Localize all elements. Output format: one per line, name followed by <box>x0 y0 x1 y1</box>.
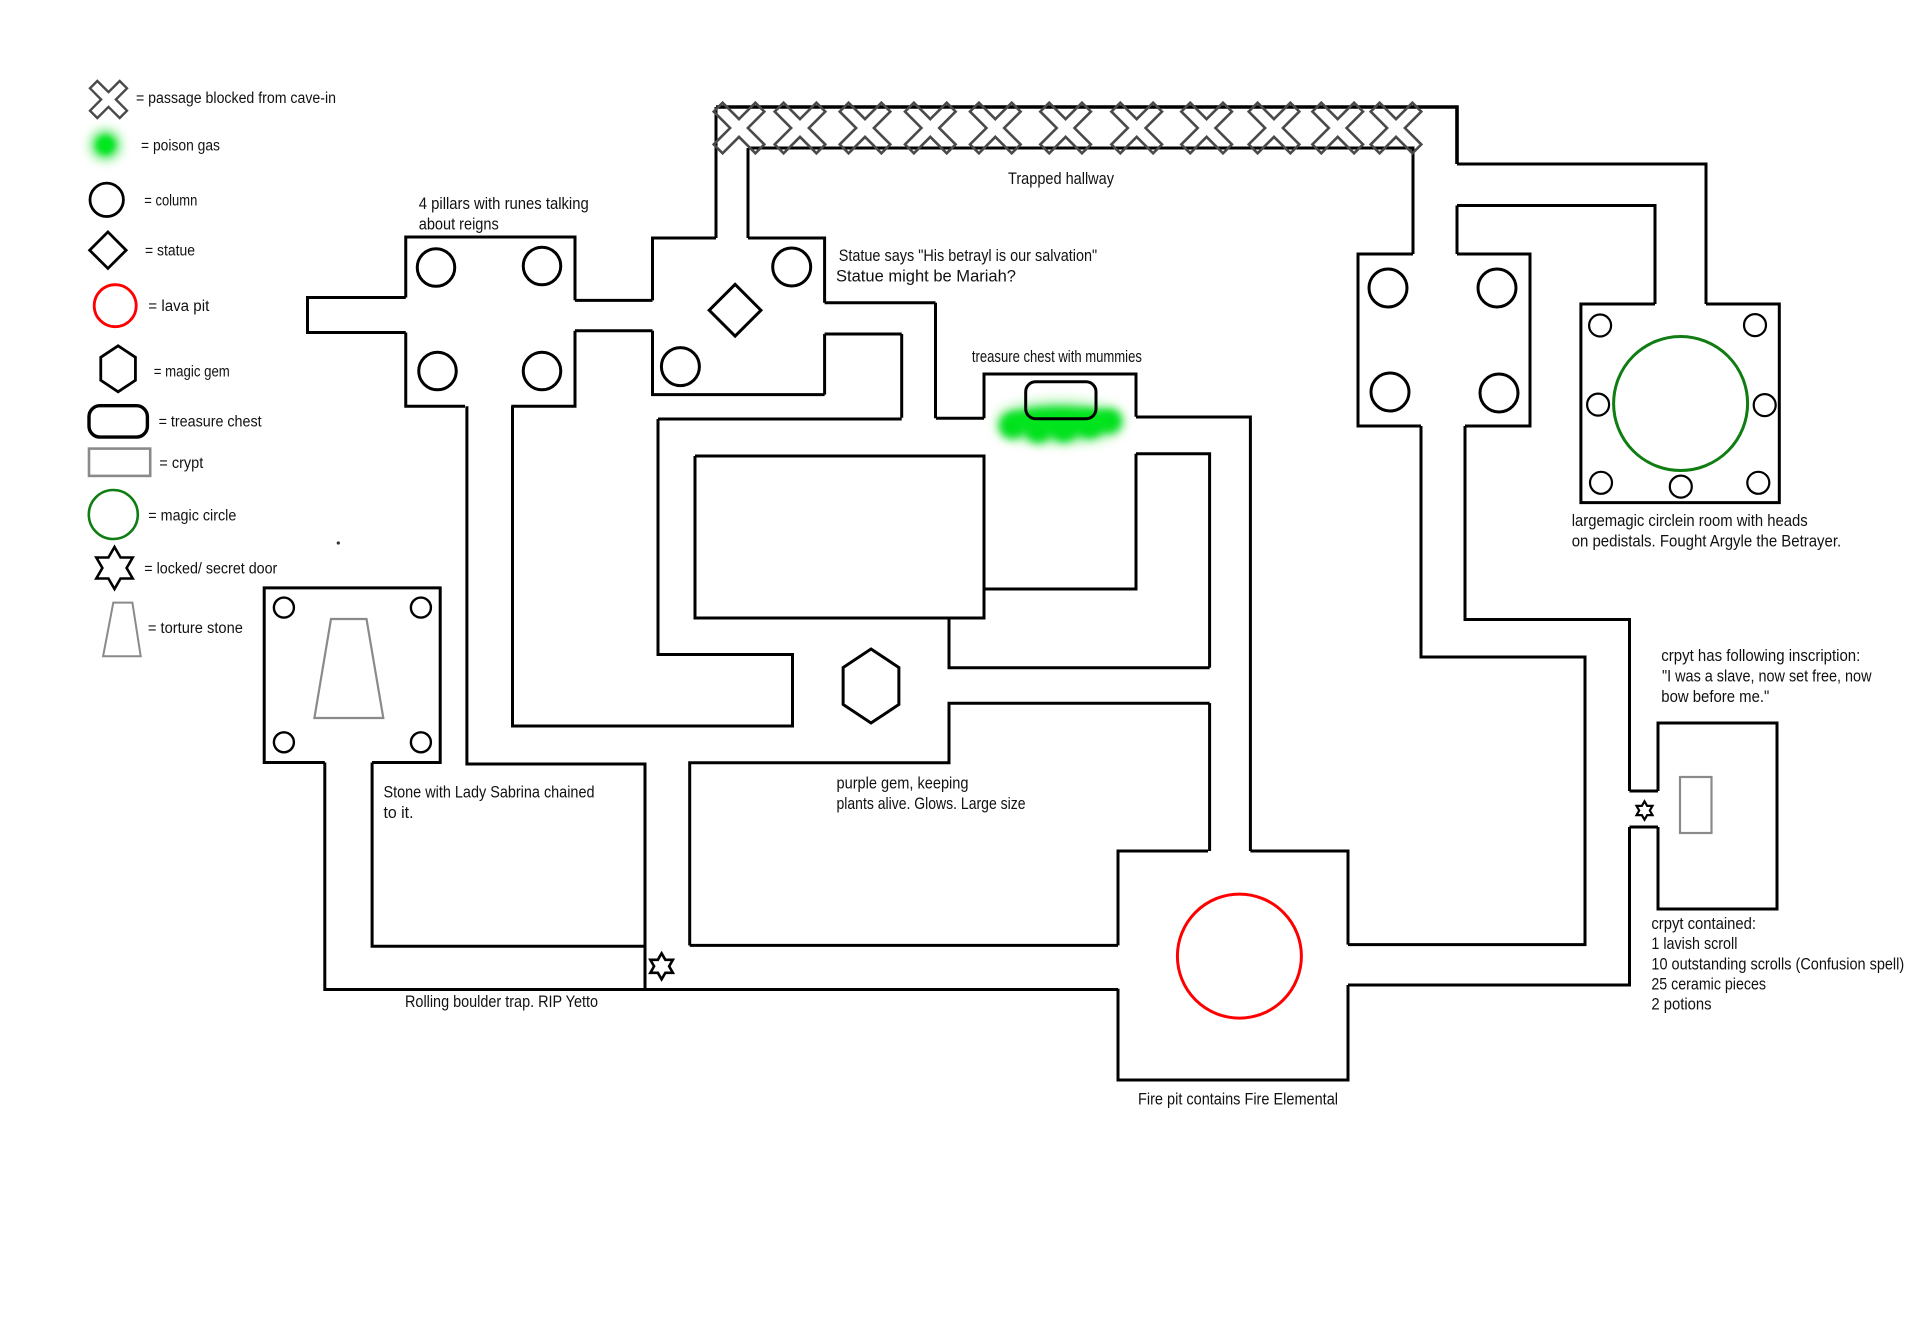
svg-text:= crypt: = crypt <box>159 455 204 472</box>
svg-text:= passage blocked from cave-in: = passage blocked from cave-in <box>136 90 336 107</box>
svg-text:purple gem, keeping: purple gem, keeping <box>837 774 969 792</box>
svg-text:about reigns: about reigns <box>419 216 499 234</box>
svg-text:Statue says "His betrayl is ou: Statue says "His betrayl is our salvatio… <box>839 247 1098 265</box>
svg-text:crpyt has following inscriptio: crpyt has following inscription: <box>1661 647 1860 665</box>
svg-text:largemagic circlein room with: largemagic circlein room with heads <box>1572 512 1808 530</box>
svg-text:= poison gas: = poison gas <box>141 138 220 155</box>
svg-text:Fire pit contains Fire Element: Fire pit contains Fire Elemental <box>1138 1091 1338 1109</box>
svg-text:25 ceramic pieces: 25 ceramic pieces <box>1651 976 1766 994</box>
svg-text:= locked/ secret door: = locked/ secret door <box>144 561 277 578</box>
svg-text:= column: = column <box>144 192 197 209</box>
svg-text:4 pillars with runes talking: 4 pillars with runes talking <box>419 195 589 213</box>
svg-text:= statue: = statue <box>145 243 195 260</box>
svg-text:= treasure chest: = treasure chest <box>159 414 263 431</box>
svg-text:Rolling boulder trap. RIP Yett: Rolling boulder trap. RIP Yetto <box>405 993 598 1011</box>
svg-text:= magic circle: = magic circle <box>148 508 236 525</box>
svg-text:to it.: to it. <box>384 804 414 822</box>
svg-text:= lava pit: = lava pit <box>148 298 210 315</box>
svg-text:= magic gem: = magic gem <box>154 364 230 381</box>
svg-text:1 lavish scroll: 1 lavish scroll <box>1651 935 1737 953</box>
svg-text:treasure chest with mummies: treasure chest with mummies <box>972 348 1142 366</box>
svg-text:bow before me.": bow before me." <box>1661 688 1769 706</box>
svg-text:= torture stone: = torture stone <box>148 620 243 637</box>
svg-text:Statue might be Mariah?: Statue might be Mariah? <box>836 268 1016 286</box>
svg-text:"I was a slave, now set free,: "I was a slave, now set free, now <box>1662 668 1872 686</box>
svg-text:10 outstanding scrolls (Confus: 10 outstanding scrolls (Confusion spell) <box>1651 956 1904 974</box>
svg-text:2 potions: 2 potions <box>1651 996 1711 1014</box>
svg-text:Stone with Lady Sabrina chaine: Stone with Lady Sabrina chained <box>384 784 595 802</box>
svg-text:on pedistals. Fought Argyle th: on pedistals. Fought Argyle the Betrayer… <box>1572 532 1842 550</box>
svg-text:Trapped hallway: Trapped hallway <box>1008 170 1115 188</box>
svg-text:plants alive. Glows. Large siz: plants alive. Glows. Large size <box>837 795 1026 813</box>
svg-text:crpyt contained:: crpyt contained: <box>1651 915 1756 933</box>
